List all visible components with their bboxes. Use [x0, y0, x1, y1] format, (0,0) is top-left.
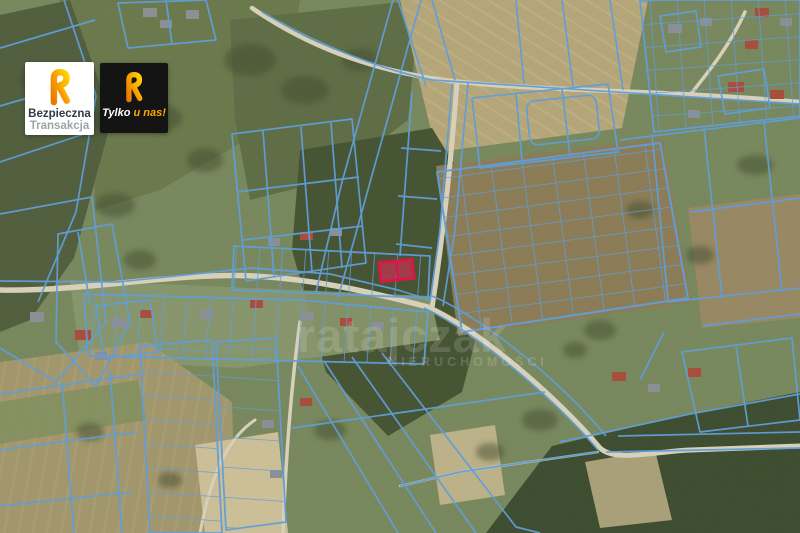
agency-logo-r-icon	[119, 70, 149, 104]
badge-only-us-prefix: Tylko	[102, 107, 130, 119]
listing-map-image[interactable]: ratajczak NIERUCHOMOŚCI Bezpieczna Trans…	[0, 0, 800, 533]
badge-safe-transaction: Bezpieczna Transakcja	[25, 62, 94, 135]
agency-logo-r-icon	[42, 67, 78, 107]
badge-safe-line1: Bezpieczna	[25, 108, 94, 120]
badge-only-us-accent: u nas!	[133, 107, 165, 119]
badge-only-us-label: Tylko u nas!	[100, 107, 168, 120]
badge-safe-line2: Transakcja	[25, 120, 94, 132]
badge-only-us: Tylko u nas!	[100, 63, 168, 133]
